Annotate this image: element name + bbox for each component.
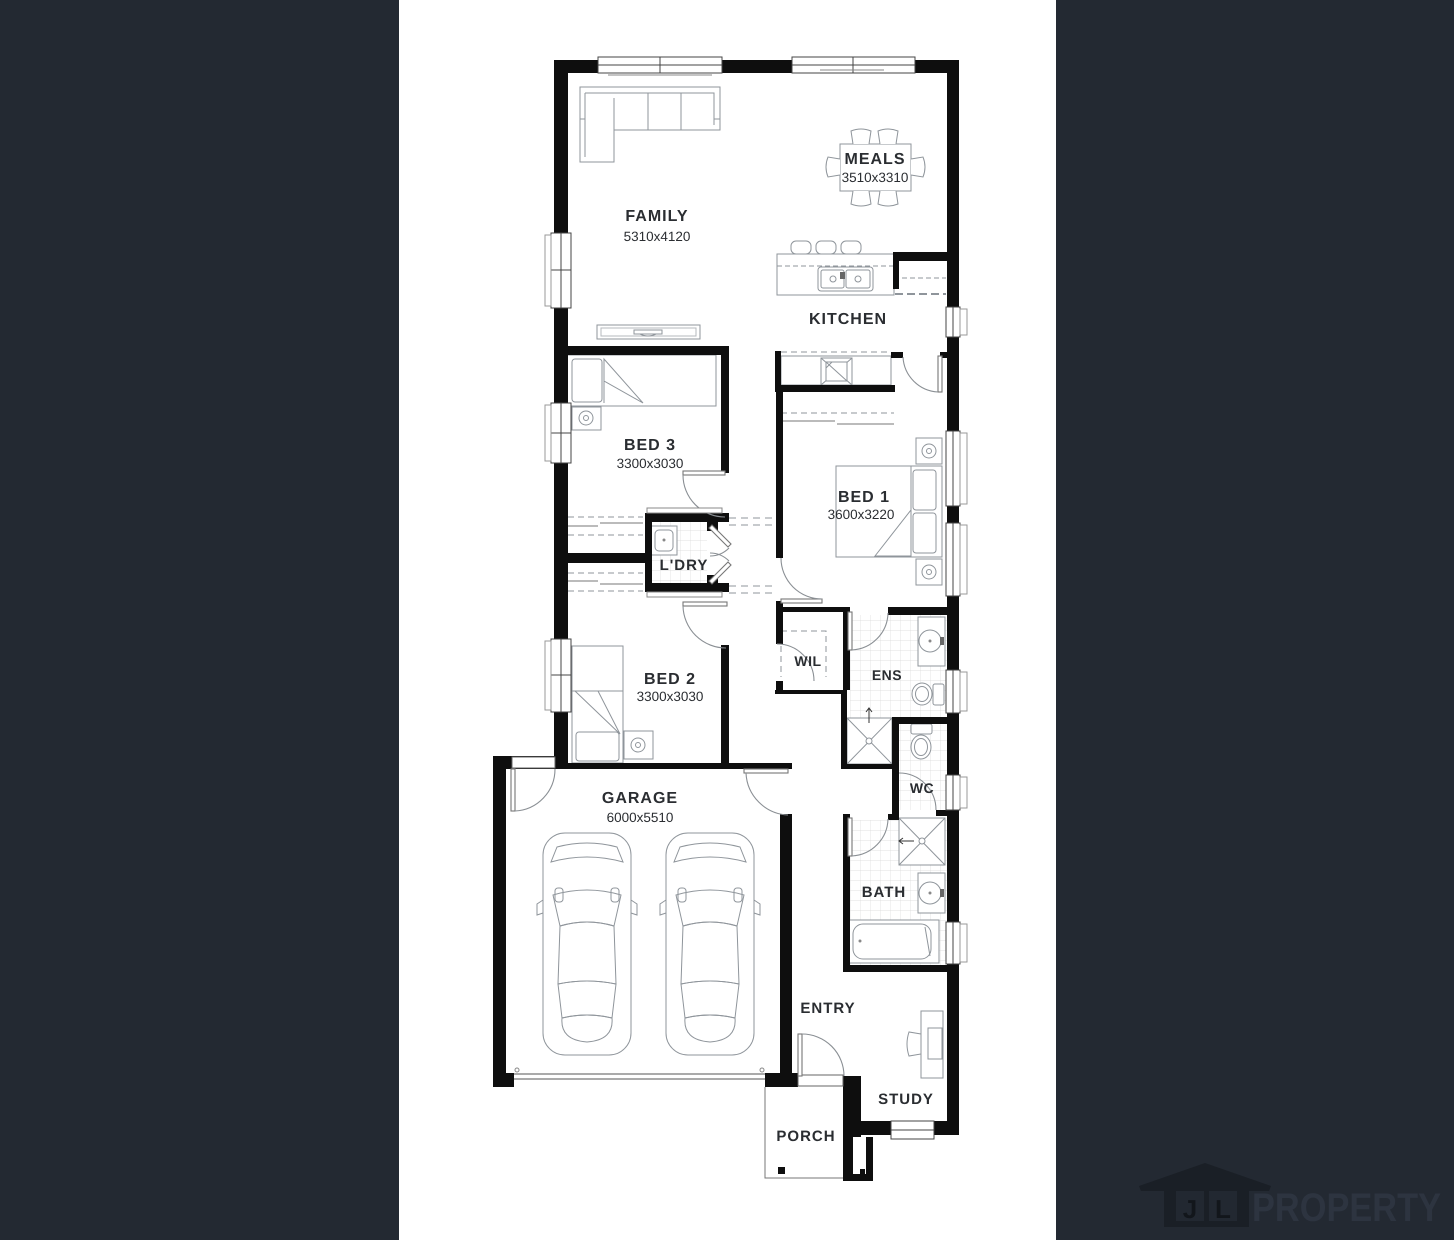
svg-text:5310x4120: 5310x4120 (624, 229, 691, 244)
svg-text:L: L (1215, 1194, 1231, 1224)
svg-text:3300x3030: 3300x3030 (637, 689, 704, 704)
svg-text:3510x3310: 3510x3310 (842, 170, 909, 185)
svg-text:3300x3030: 3300x3030 (617, 456, 684, 471)
svg-text:MEALS: MEALS (845, 151, 906, 168)
svg-text:3600x3220: 3600x3220 (828, 507, 895, 522)
svg-text:J: J (1183, 1194, 1197, 1224)
svg-text:BED 3: BED 3 (624, 437, 676, 454)
svg-text:L'DRY: L'DRY (660, 557, 709, 574)
svg-text:STUDY: STUDY (878, 1091, 934, 1108)
svg-text:KITCHEN: KITCHEN (809, 311, 887, 328)
svg-text:PORCH: PORCH (776, 1128, 835, 1145)
svg-text:BED 1: BED 1 (838, 489, 890, 506)
svg-text:BED 2: BED 2 (644, 671, 696, 688)
svg-text:ENTRY: ENTRY (800, 1000, 855, 1017)
svg-text:6000x5510: 6000x5510 (607, 810, 674, 825)
svg-text:FAMILY: FAMILY (625, 208, 688, 225)
svg-text:WIL: WIL (794, 653, 821, 669)
svg-text:WC: WC (910, 780, 934, 796)
svg-text:BATH: BATH (862, 884, 907, 901)
svg-text:PROPERTY: PROPERTY (1252, 1186, 1441, 1230)
svg-text:ENS: ENS (872, 667, 902, 683)
svg-text:GARAGE: GARAGE (602, 790, 678, 807)
